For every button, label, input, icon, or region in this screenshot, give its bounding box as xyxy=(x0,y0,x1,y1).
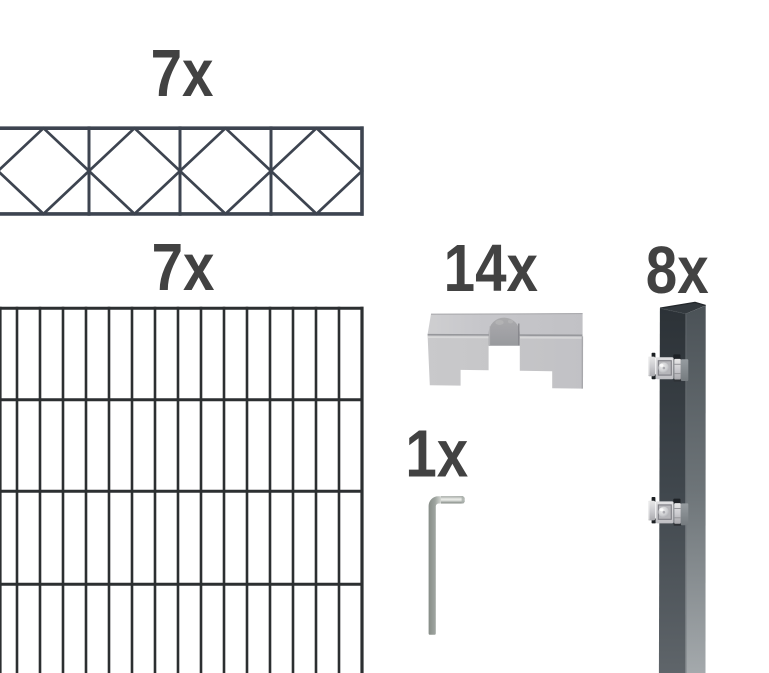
svg-text:7x: 7x xyxy=(151,37,214,111)
svg-text:14x: 14x xyxy=(444,232,538,306)
svg-text:1x: 1x xyxy=(405,417,468,491)
svg-text:8x: 8x xyxy=(646,234,709,308)
svg-text:7x: 7x xyxy=(152,231,215,305)
